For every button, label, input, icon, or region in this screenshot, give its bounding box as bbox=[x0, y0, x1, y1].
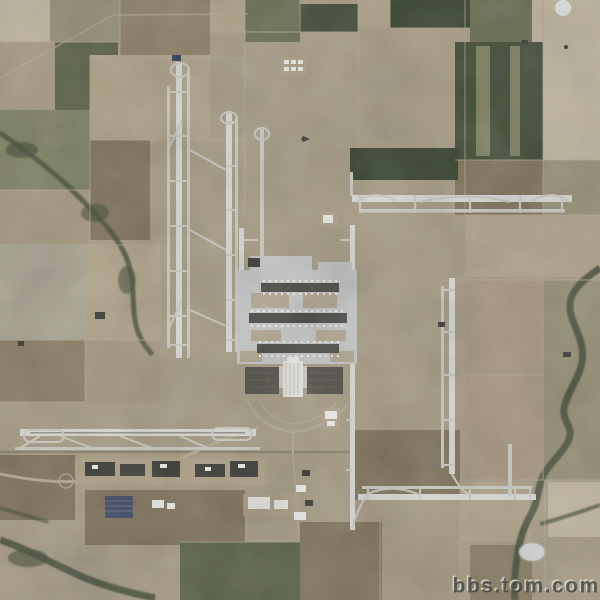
watermark-text: bbs.tom.com bbox=[453, 575, 600, 598]
watermark: bbs.tom.com bbs.tom.com bbox=[451, 573, 600, 598]
satellite-image: bbs.tom.com bbs.tom.com bbox=[0, 0, 600, 600]
photo-texture bbox=[0, 0, 600, 600]
airport-aerial-svg: bbs.tom.com bbs.tom.com bbox=[0, 0, 600, 600]
